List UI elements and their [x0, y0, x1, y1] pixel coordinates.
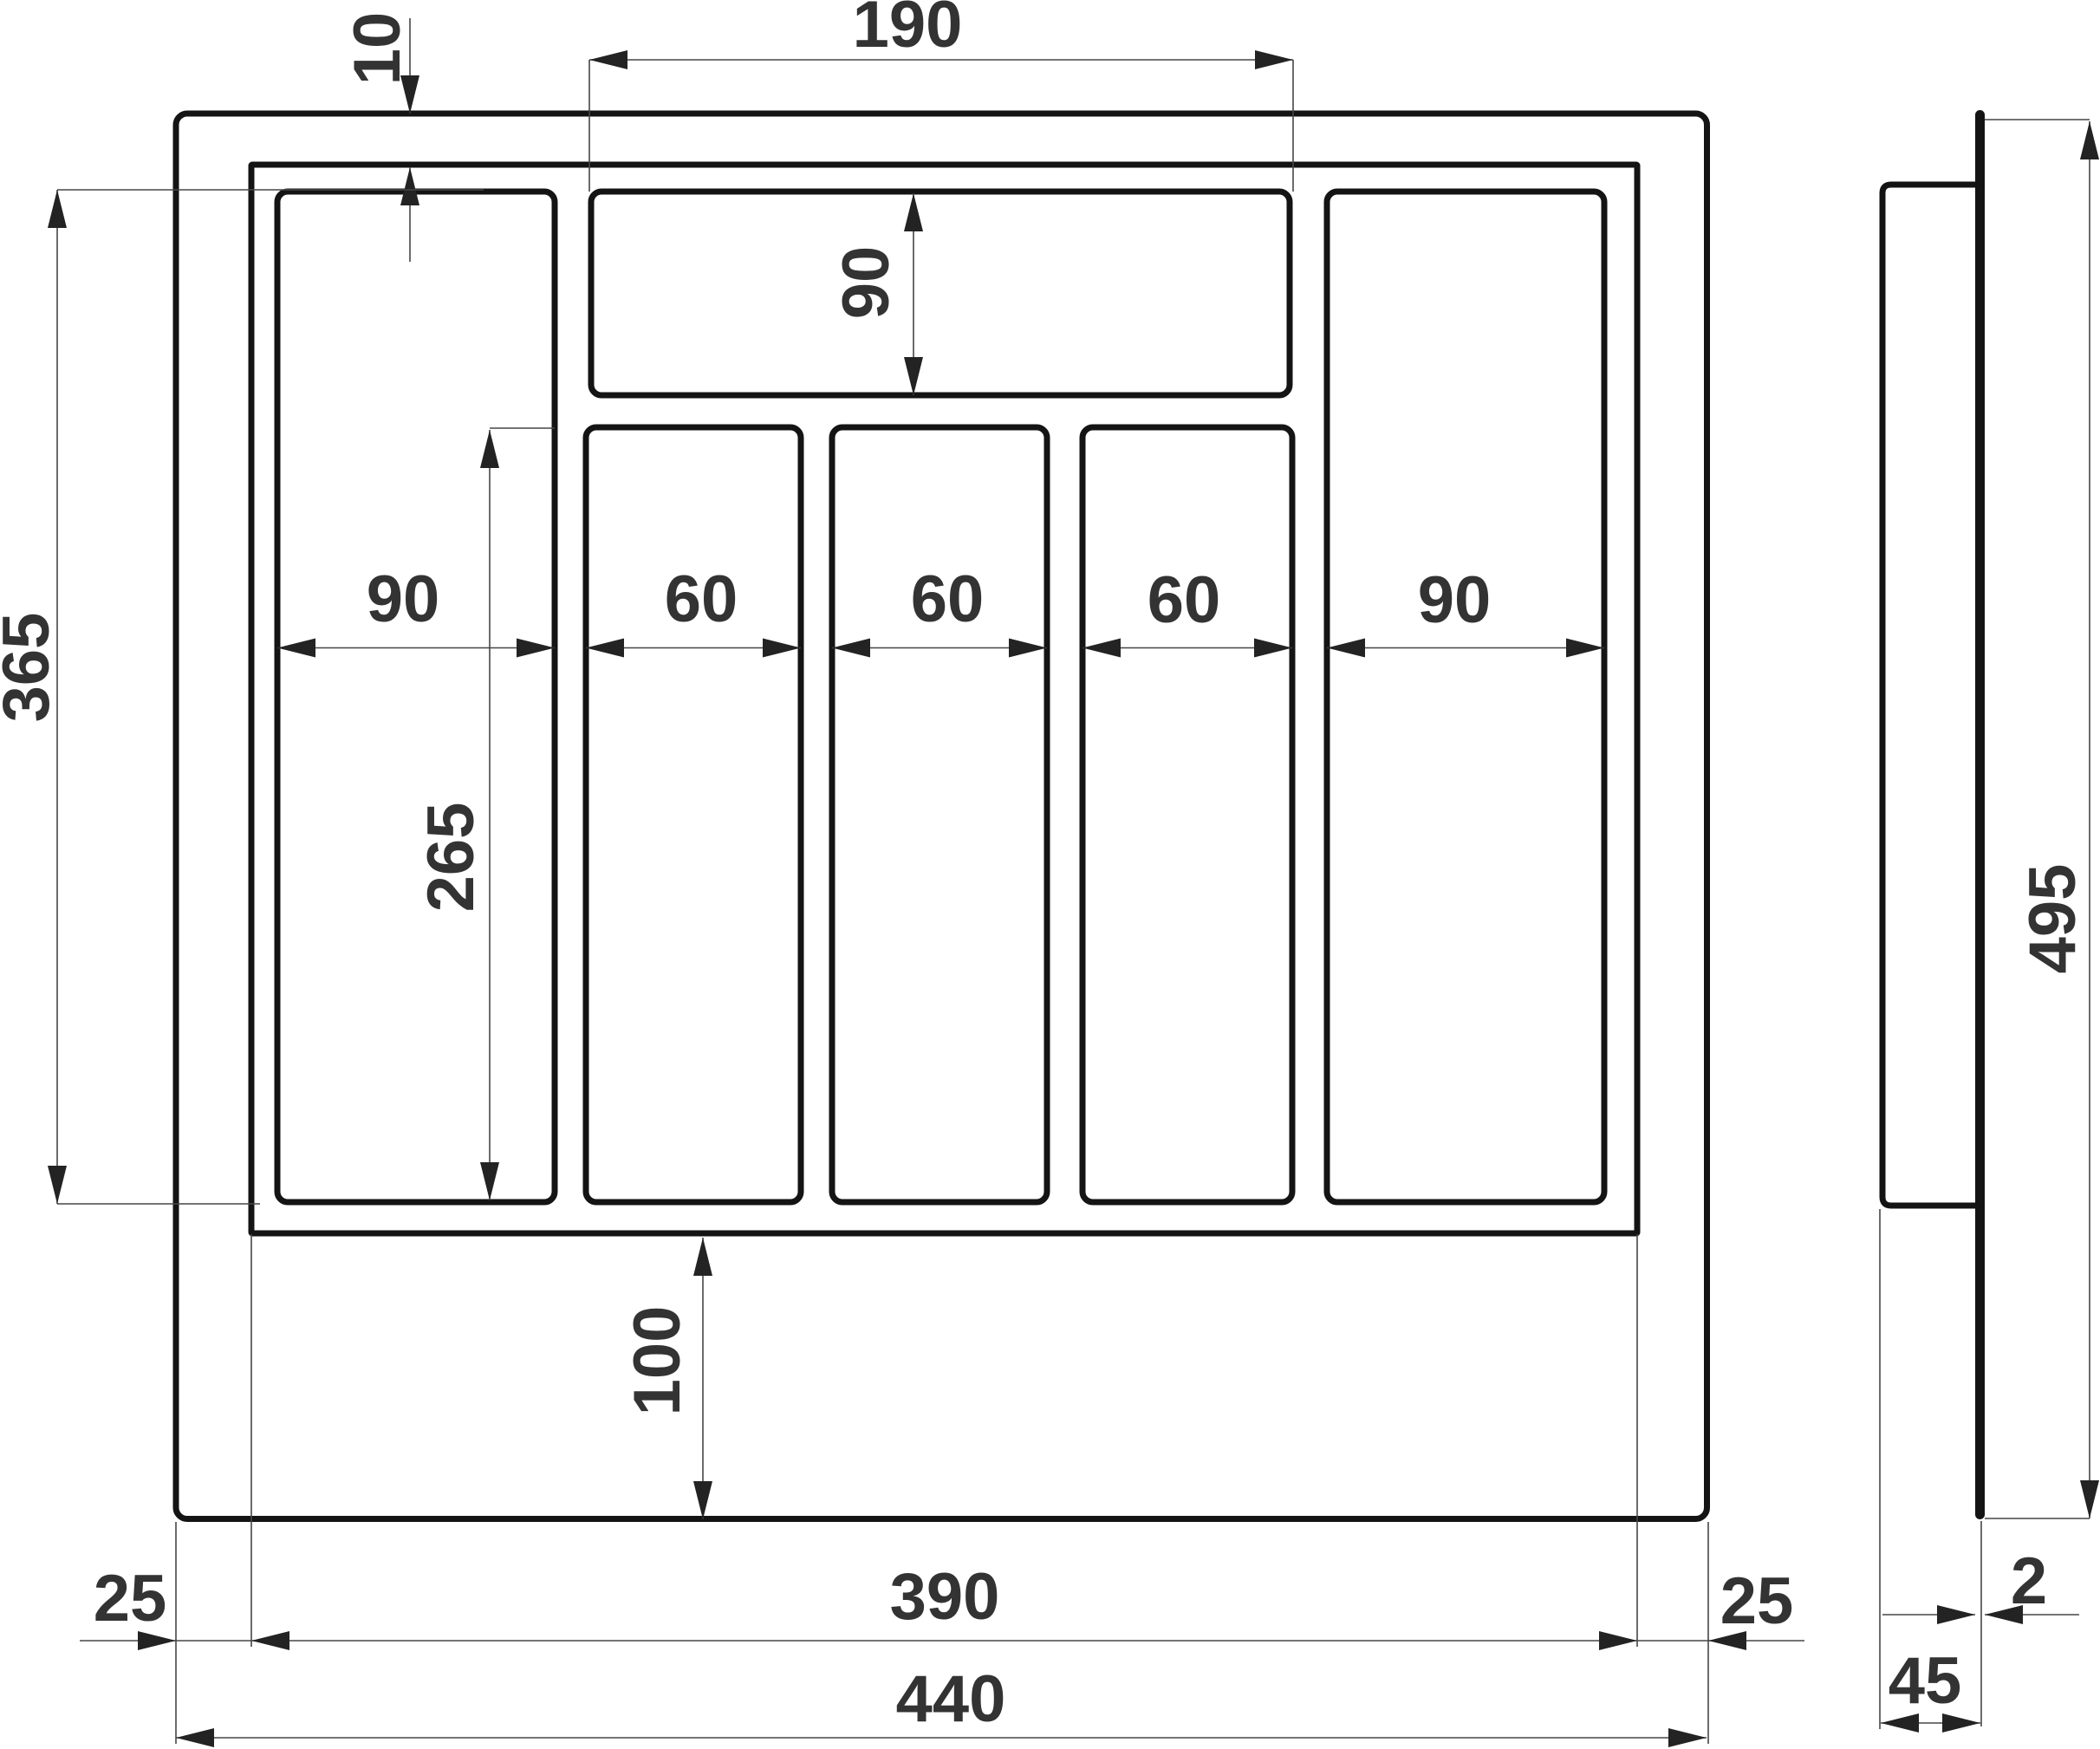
svg-text:90: 90 — [829, 246, 903, 320]
svg-text:90: 90 — [1418, 563, 1492, 637]
svg-text:60: 60 — [911, 562, 985, 636]
svg-text:390: 390 — [890, 1560, 1000, 1634]
svg-text:365: 365 — [0, 613, 63, 723]
svg-text:25: 25 — [1720, 1564, 1794, 1638]
svg-text:90: 90 — [367, 562, 440, 636]
svg-text:25: 25 — [94, 1562, 167, 1635]
svg-text:2: 2 — [2011, 1544, 2047, 1618]
svg-text:45: 45 — [1889, 1644, 1962, 1718]
svg-text:265: 265 — [414, 803, 488, 913]
svg-text:10: 10 — [341, 12, 414, 86]
svg-text:440: 440 — [896, 1662, 1006, 1736]
svg-text:60: 60 — [665, 562, 738, 636]
svg-text:100: 100 — [621, 1306, 694, 1416]
svg-text:60: 60 — [1148, 563, 1221, 637]
svg-text:190: 190 — [853, 0, 963, 62]
svg-text:495: 495 — [2016, 864, 2090, 974]
